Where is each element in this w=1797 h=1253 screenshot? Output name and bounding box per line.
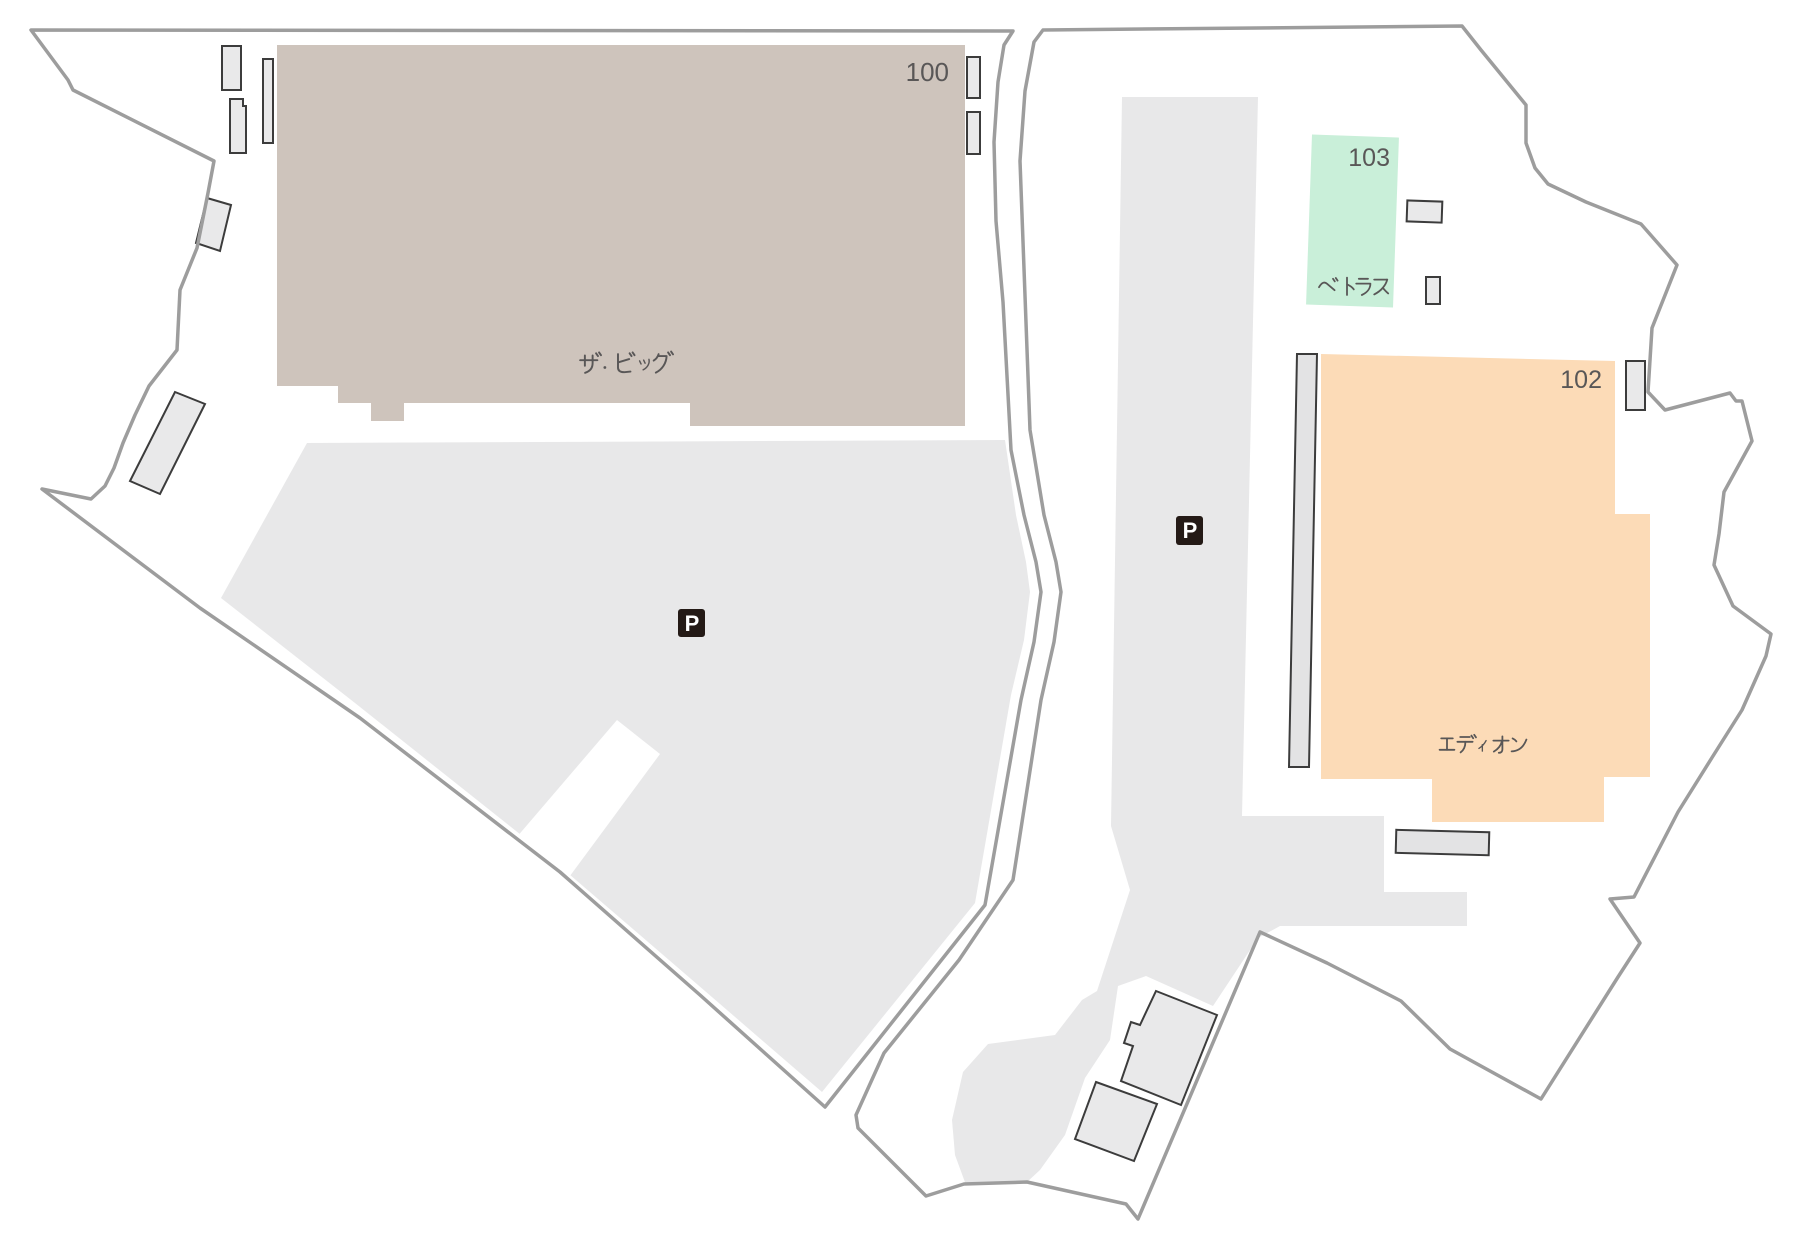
svg-text:P: P (685, 611, 700, 636)
svg-text:P: P (1183, 518, 1198, 543)
svg-text:103: 103 (1348, 144, 1390, 172)
svg-text:100: 100 (906, 57, 949, 87)
svg-text:102: 102 (1560, 366, 1602, 394)
